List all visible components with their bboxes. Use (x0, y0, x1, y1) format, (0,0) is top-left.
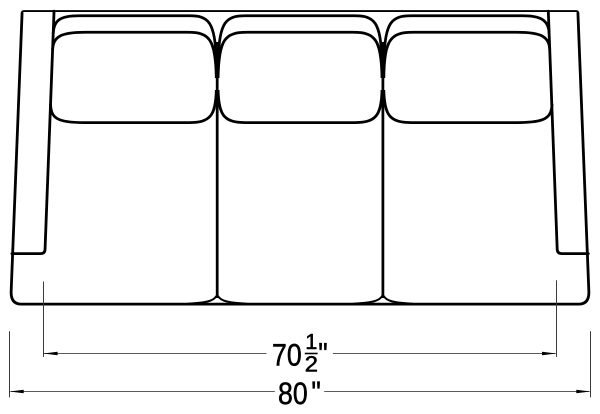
svg-text:2: 2 (305, 352, 318, 377)
svg-text:70: 70 (272, 337, 302, 372)
svg-text:": " (311, 375, 320, 410)
svg-text:80: 80 (278, 376, 308, 411)
svg-text:": " (318, 336, 327, 371)
svg-text:1: 1 (305, 329, 317, 354)
